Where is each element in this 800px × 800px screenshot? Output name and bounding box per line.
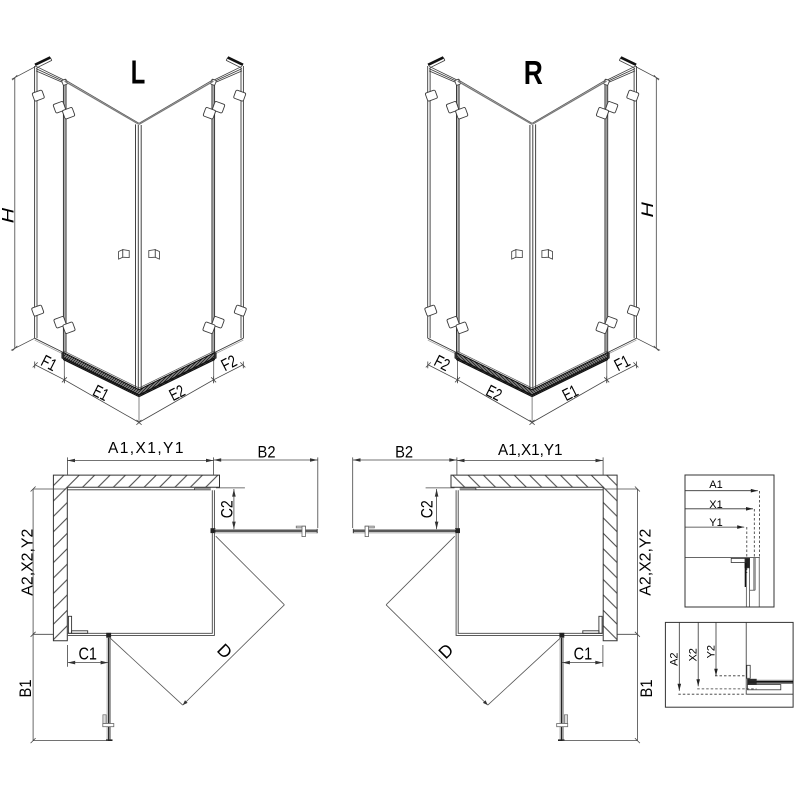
- svg-text:X1: X1: [709, 499, 722, 511]
- svg-text:A2: A2: [669, 652, 681, 665]
- svg-text:H: H: [639, 202, 658, 217]
- svg-text:F1: F1: [611, 351, 633, 375]
- svg-text:B2: B2: [395, 444, 413, 462]
- svg-text:A2,X2,Y2: A2,X2,Y2: [638, 529, 655, 596]
- svg-text:F2: F2: [431, 351, 453, 375]
- svg-text:C2: C2: [218, 500, 236, 518]
- svg-text:D: D: [213, 640, 236, 663]
- svg-text:B1: B1: [637, 680, 656, 698]
- svg-text:E2: E2: [166, 381, 188, 405]
- svg-text:F1: F1: [38, 351, 60, 375]
- svg-text:H: H: [0, 208, 18, 223]
- svg-text:E1: E1: [559, 381, 581, 405]
- svg-text:E1: E1: [90, 381, 112, 405]
- svg-text:B1: B1: [16, 680, 35, 698]
- svg-text:C2: C2: [419, 500, 437, 518]
- svg-text:Y2: Y2: [705, 645, 717, 658]
- svg-text:A2,X2,Y2: A2,X2,Y2: [20, 529, 37, 596]
- svg-text:D: D: [434, 640, 457, 663]
- svg-text:Y1: Y1: [709, 517, 722, 529]
- svg-text:A1: A1: [709, 479, 722, 491]
- svg-text:L: L: [131, 55, 146, 92]
- svg-text:A1,X1,Y1: A1,X1,Y1: [108, 440, 184, 457]
- svg-text:F2: F2: [218, 351, 240, 375]
- svg-text:C1: C1: [78, 644, 97, 664]
- svg-text:X2: X2: [687, 648, 699, 661]
- svg-text:A1,X1,Y1: A1,X1,Y1: [498, 442, 563, 459]
- svg-text:C1: C1: [574, 644, 593, 664]
- svg-text:R: R: [524, 55, 543, 91]
- svg-text:E2: E2: [483, 381, 505, 405]
- svg-text:B2: B2: [258, 444, 276, 462]
